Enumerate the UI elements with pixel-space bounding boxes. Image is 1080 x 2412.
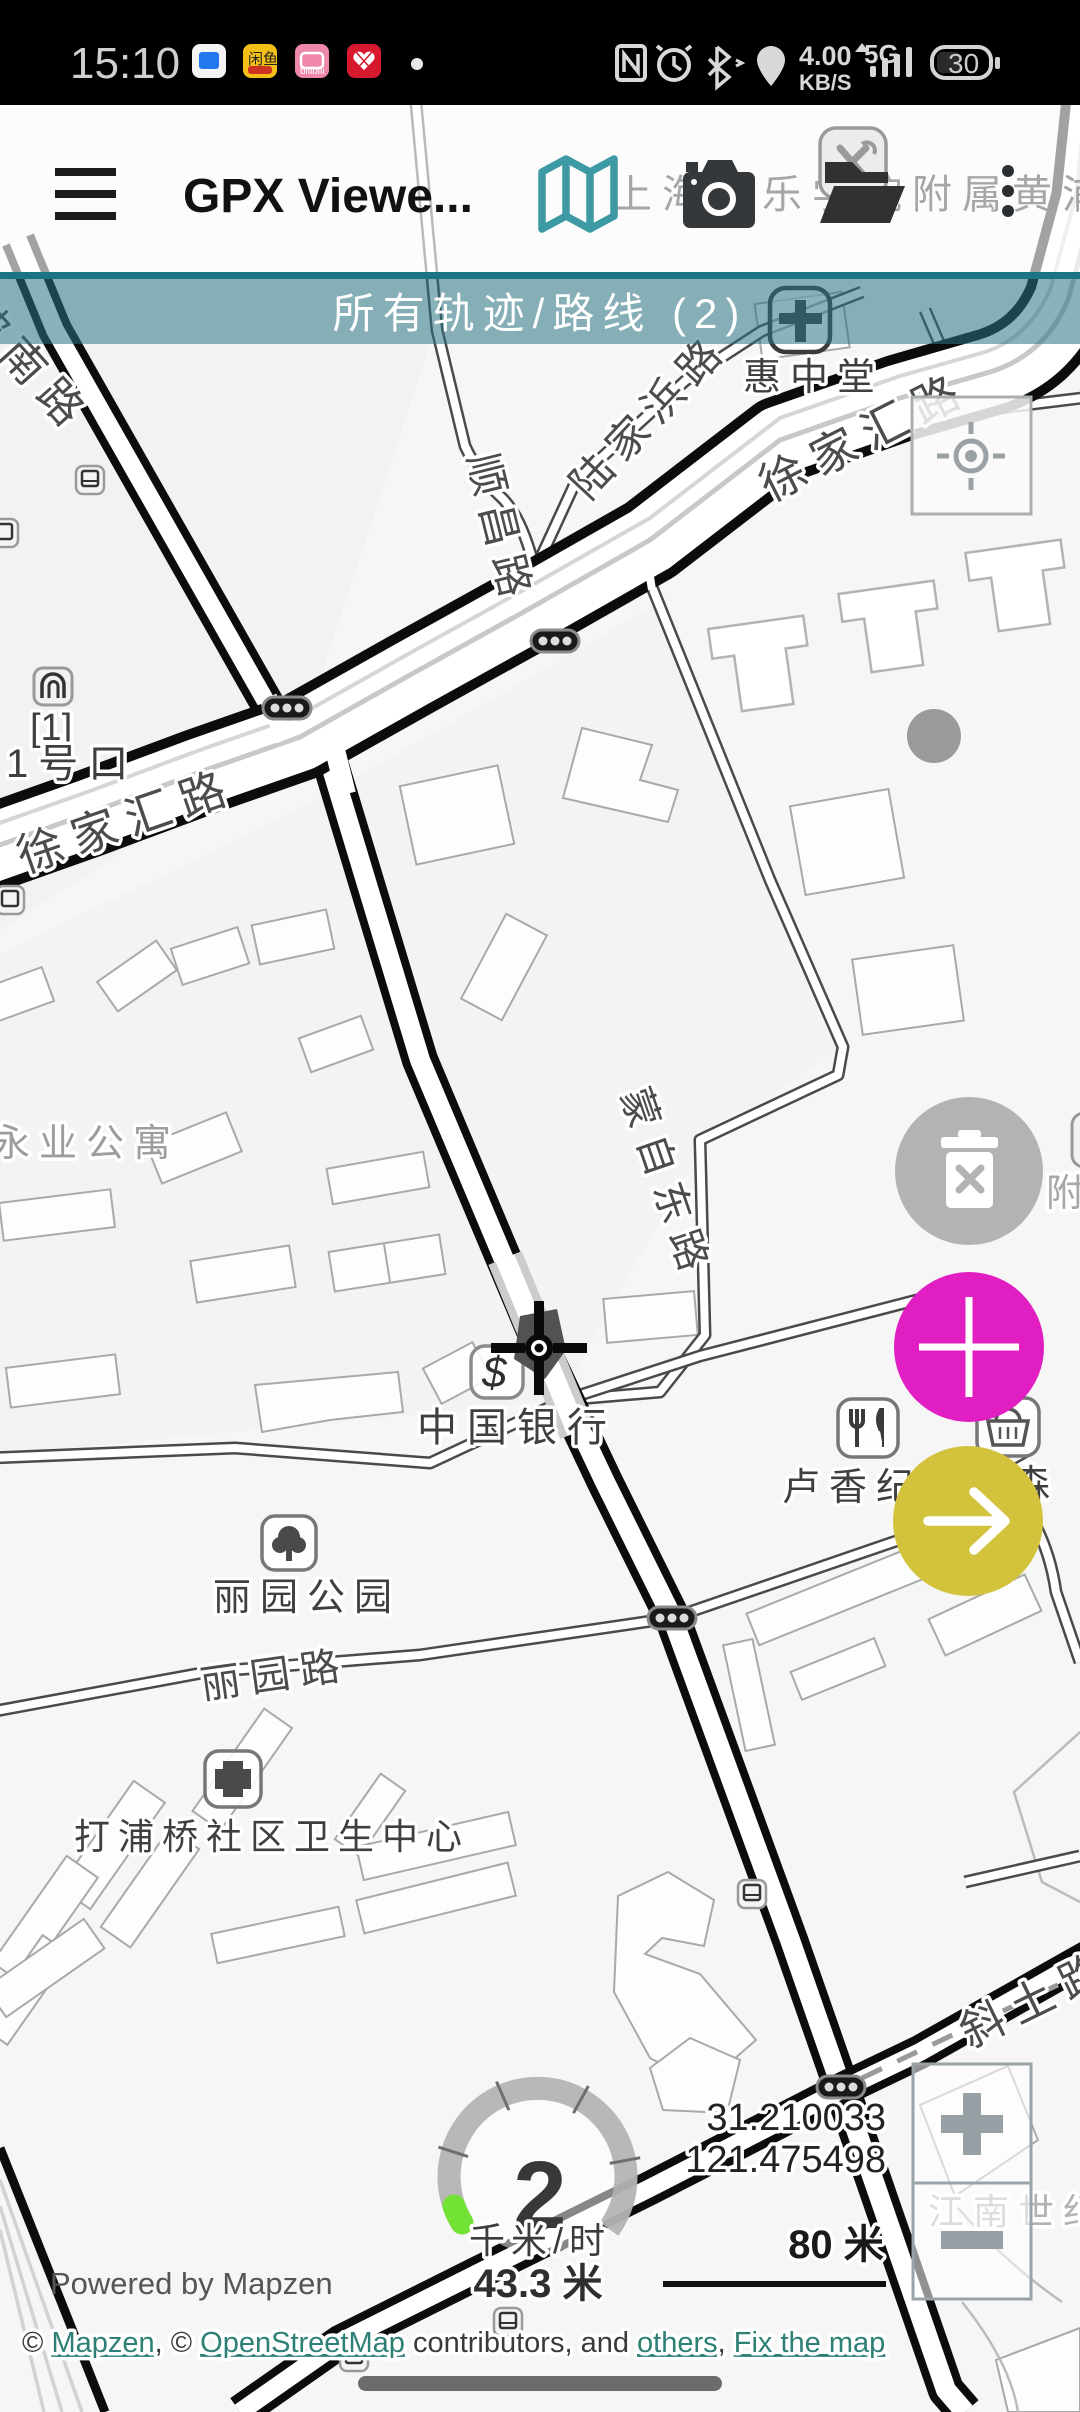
svg-text:永业公寓: 永业公寓	[0, 1123, 180, 1165]
svg-text:KB/S: KB/S	[799, 70, 852, 95]
svg-text:31.210033: 31.210033	[706, 2097, 886, 2139]
svg-text:打浦桥社区卫生中心: 打浦桥社区卫生中心	[74, 1816, 470, 1857]
svg-text:bilibili: bilibili	[300, 66, 324, 77]
svg-text:121.475498: 121.475498	[685, 2139, 886, 2181]
svg-text:中国银行: 中国银行	[417, 1406, 617, 1450]
svg-text:4.00: 4.00	[799, 41, 852, 71]
svg-text:丽园公园: 丽园公园	[213, 1577, 401, 1619]
svg-text:80 米: 80 米	[788, 2223, 884, 2267]
svg-text:闲鱼: 闲鱼	[248, 50, 278, 68]
svg-text:所有轨迹/路线 (2): 所有轨迹/路线 (2)	[333, 290, 748, 337]
svg-text:1号口: 1号口	[6, 742, 138, 786]
svg-text:千米/时: 千米/时	[469, 2220, 611, 2261]
svg-text:$: $	[481, 1348, 508, 1397]
svg-text:© Mapzen, © OpenStreetMap cont: © Mapzen, © OpenStreetMap contributors, …	[22, 2327, 885, 2359]
svg-text:GPX Viewe...: GPX Viewe...	[183, 170, 473, 223]
svg-text:惠中堂: 惠中堂	[743, 357, 884, 399]
svg-text:43.3 米: 43.3 米	[474, 2262, 603, 2306]
svg-text:Powered by Mapzen: Powered by Mapzen	[50, 2266, 333, 2301]
svg-text:15:10: 15:10	[70, 39, 180, 88]
svg-text:5G: 5G	[864, 39, 899, 69]
svg-text:30: 30	[948, 48, 979, 79]
svg-text:附属: 附属	[1046, 1173, 1080, 1215]
